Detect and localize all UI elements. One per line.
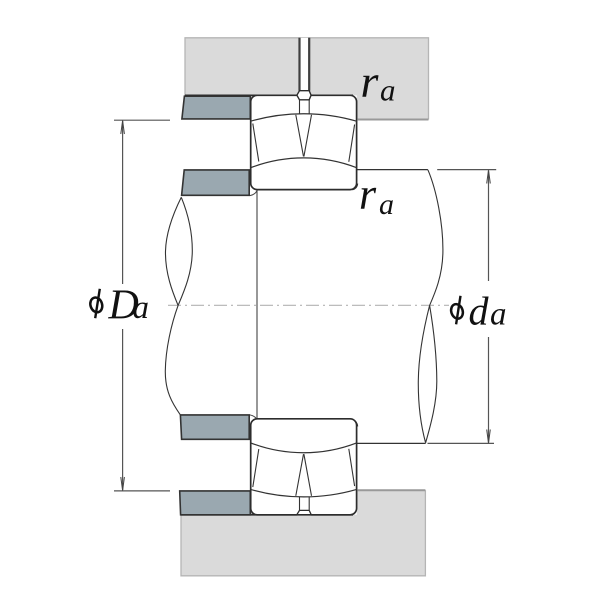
svg-text:d: d: [469, 289, 490, 334]
svg-text:a: a: [380, 73, 396, 108]
svg-text:a: a: [133, 290, 150, 326]
svg-text:r: r: [359, 170, 377, 219]
svg-text:a: a: [379, 188, 394, 221]
svg-text:a: a: [490, 297, 507, 333]
svg-text:r: r: [361, 56, 380, 107]
